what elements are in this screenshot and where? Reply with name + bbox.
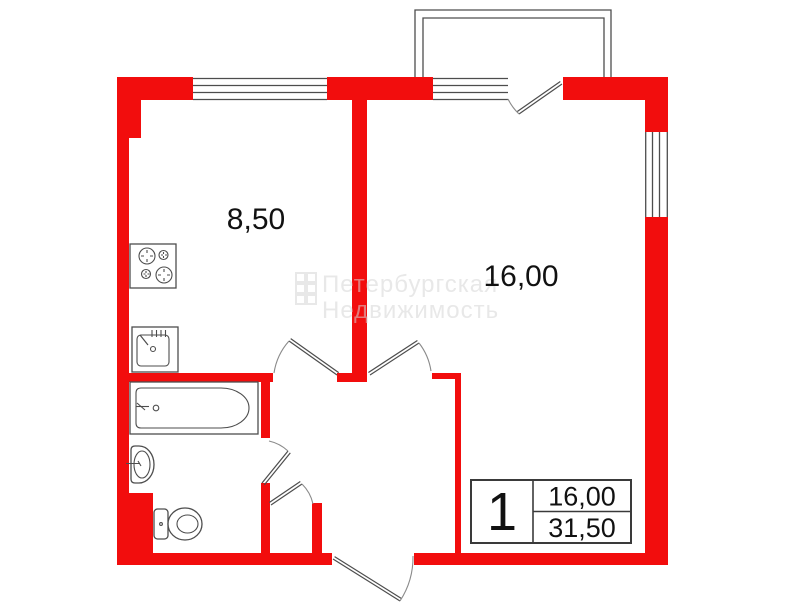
balcony-window [433,79,508,100]
rooms-count-value: 1 [487,482,517,542]
floor-plan-page: Петербургская Недвижимость 8,50 16,00 1 … [0,0,800,603]
living-area-label: 16,00 [483,260,558,293]
kitchen-area-label: 8,50 [227,203,285,236]
living-room-door [368,341,431,376]
right-wall [645,217,668,565]
bottom-wall-left [117,553,332,565]
kitchen-living-wall [352,100,367,373]
watermark: Петербургская Недвижимость [296,271,499,324]
bathroom-hall-wall-lower [261,483,270,553]
bathroom-door [262,441,290,485]
kitchen-door [274,339,339,375]
balcony [415,10,611,77]
toilet-icon [154,508,202,540]
bathtub-icon [130,382,258,434]
kitchen-living-wall-cap [337,373,367,382]
watermark-logo [296,273,316,304]
toilet-door [269,482,313,506]
total-area-value: 31,50 [548,513,616,543]
left-wall [117,77,129,565]
watermark-line2: Недвижимость [322,297,499,324]
balcony-door [508,82,562,115]
entrance-door [333,556,413,601]
living-area-value: 16,00 [548,482,616,512]
bottom-wall-right [414,553,668,565]
washbasin-icon [126,446,154,483]
kitchen-window [193,79,327,100]
bathroom-hall-wall-upper [261,382,270,438]
living-room-window [646,132,668,217]
toilet-hall-wall-stub [312,503,322,553]
top-wall-middle-segment [327,77,433,100]
kitchen-bath-divider-wall [129,373,273,382]
duct-block [117,493,153,553]
right-wall-top-block [645,77,668,132]
balcony-inner-line [423,18,604,77]
info-table: 1 16,00 31,50 [471,480,631,543]
balcony-outer-line [415,10,611,77]
stove-icon [130,244,176,288]
hall-living-wall [455,373,461,553]
kitchen-sink-icon [132,327,178,372]
floor-plan: Петербургская Недвижимость 8,50 16,00 1 … [0,0,800,603]
watermark-line1: Петербургская [322,271,498,298]
